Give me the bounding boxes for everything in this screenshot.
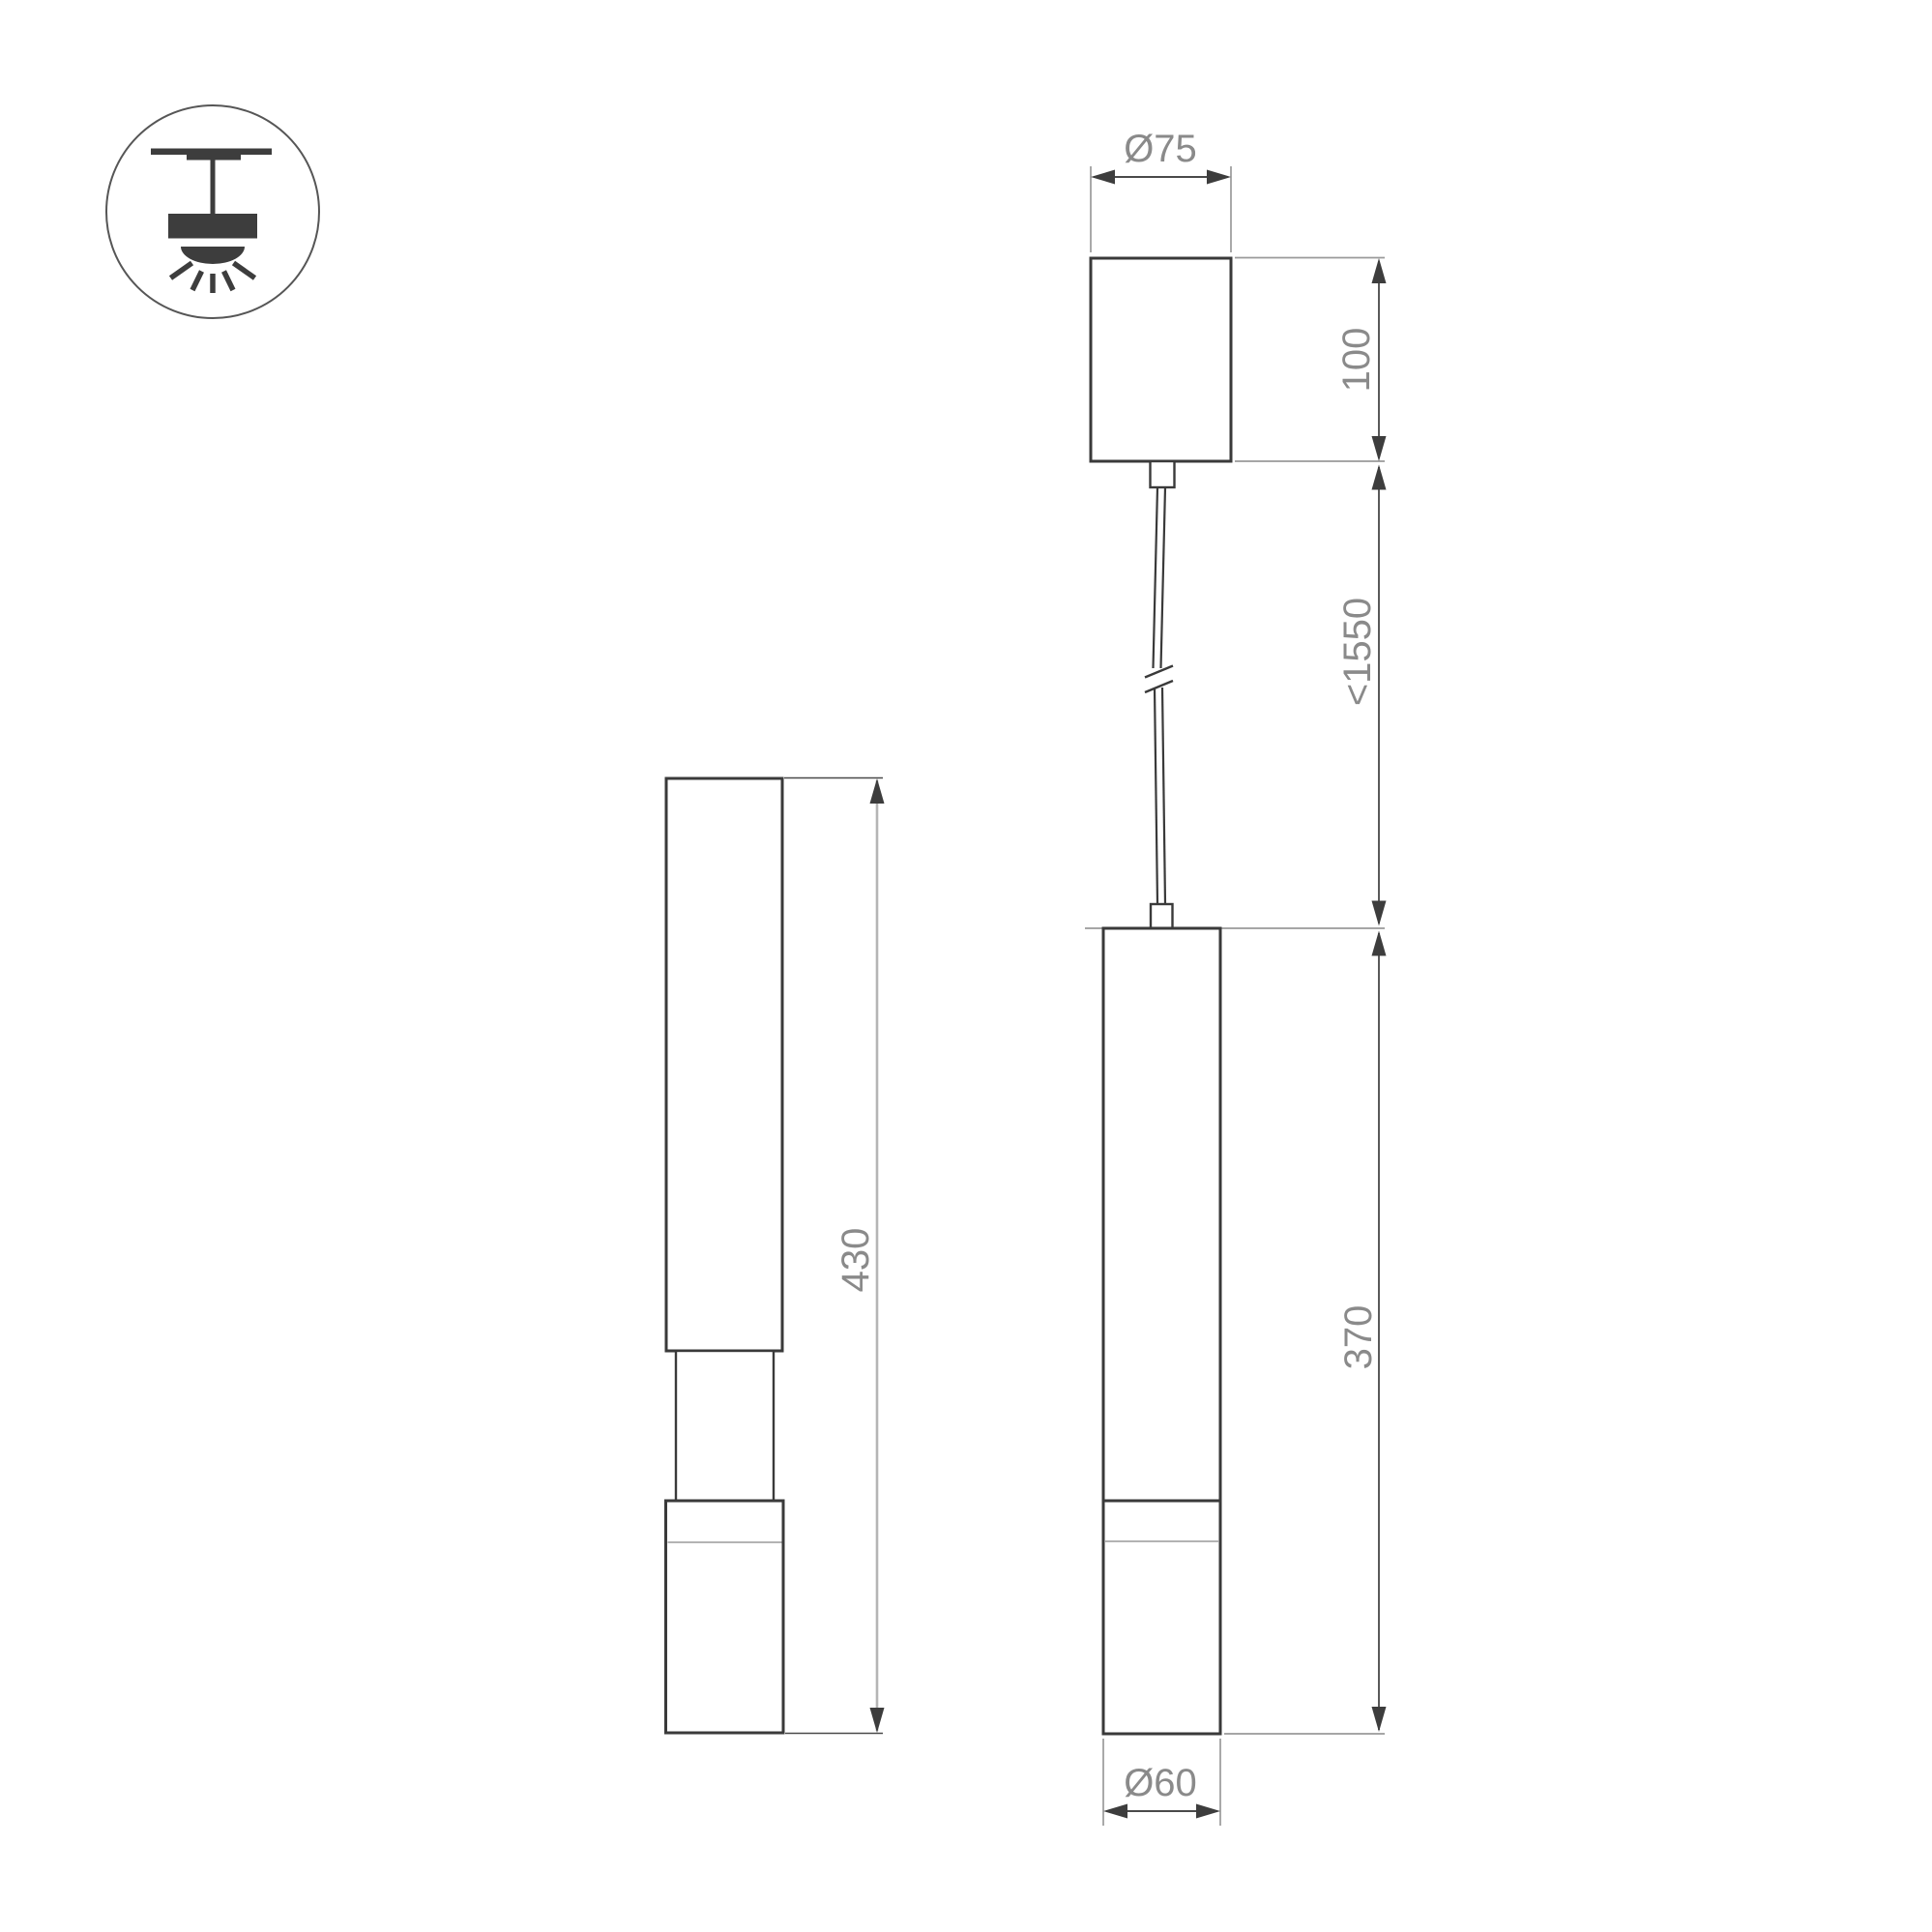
cable-line: [1162, 688, 1165, 904]
suspension-cable: [1145, 487, 1173, 904]
dim-body-height: 370: [1337, 931, 1387, 1733]
lamp-tube-body: [1103, 928, 1220, 1734]
cable-line: [1155, 688, 1157, 904]
dim-suspension-length: <1550: [1336, 465, 1387, 926]
front-view: [1091, 258, 1231, 1734]
ceiling-canopy: [1091, 258, 1231, 461]
lamp-body-icon: [168, 214, 257, 239]
dim-canopy-diameter: Ø75: [1091, 128, 1231, 185]
mount-plate-icon: [187, 155, 241, 161]
pendant-mount-icon: [106, 105, 319, 318]
arrow-down-icon: [870, 1708, 885, 1733]
light-ray: [224, 272, 234, 291]
cable-line: [1161, 487, 1166, 668]
ceiling-line-icon: [151, 149, 272, 156]
arrow-down-icon: [1372, 1707, 1387, 1732]
lamp-cable-connector: [1151, 904, 1173, 930]
arrow-right-icon: [1196, 1804, 1220, 1819]
label-suspension-length: <1550: [1336, 598, 1379, 706]
light-ray: [192, 272, 202, 291]
side-view: [666, 778, 784, 1733]
arrow-down-icon: [1372, 901, 1387, 926]
arrow-left-icon: [1091, 170, 1115, 185]
arrow-right-icon: [1207, 170, 1231, 185]
side-view-neck: [676, 1351, 774, 1501]
arrow-up-icon: [1372, 931, 1387, 956]
arrow-up-icon: [870, 778, 885, 804]
light-rays-icon: [171, 263, 255, 293]
dim-canopy-height: 100: [1335, 258, 1387, 461]
label-body-diameter: Ø60: [1124, 1762, 1197, 1804]
canopy-cable-gland: [1151, 461, 1175, 487]
label-side-view-height: 430: [834, 1228, 877, 1293]
dim-body-diameter: Ø60: [1103, 1762, 1220, 1819]
pendant-luminaire-dimension-drawing: Ø75 100 <1550 370 Ø60 430: [0, 0, 1932, 1932]
arrow-up-icon: [1372, 258, 1387, 283]
pendant-rod-icon: [211, 161, 216, 215]
cable-break-mark: [1145, 666, 1173, 678]
cable-line: [1154, 487, 1158, 668]
arrow-left-icon: [1103, 1804, 1127, 1819]
light-ray: [171, 263, 192, 278]
cable-break-mark: [1145, 681, 1173, 692]
label-body-height: 370: [1337, 1305, 1380, 1370]
dim-side-view-height: 430: [834, 778, 885, 1733]
arrow-up-icon: [1372, 465, 1387, 490]
arrow-down-icon: [1372, 436, 1387, 461]
side-view-diffuser: [666, 1501, 784, 1733]
label-canopy-height: 100: [1335, 328, 1378, 393]
side-view-upper-body: [666, 778, 782, 1351]
label-canopy-diameter: Ø75: [1124, 128, 1197, 170]
light-ray: [234, 263, 255, 278]
extension-lines: [784, 166, 1385, 1826]
